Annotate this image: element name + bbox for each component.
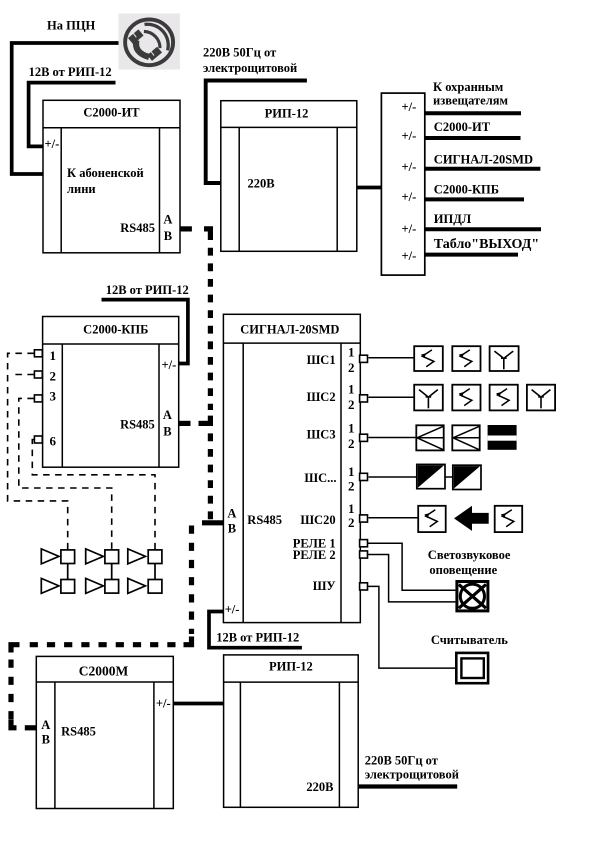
svg-text:+/-: +/- (402, 222, 417, 236)
svg-text:В: В (164, 229, 172, 243)
svg-text:лини: лини (67, 182, 96, 196)
svg-text:В: В (228, 521, 236, 535)
svg-text:ШУ: ШУ (313, 579, 336, 593)
svg-text:Светозвуковое: Светозвуковое (428, 548, 511, 562)
svg-text:2: 2 (50, 369, 57, 384)
svg-text:1: 1 (348, 501, 355, 516)
svg-text:3: 3 (50, 389, 57, 404)
svg-text:ШС...: ШС... (304, 471, 336, 485)
svg-text:А: А (163, 408, 172, 422)
svg-text:+/-: +/- (402, 249, 417, 263)
svg-text:2: 2 (348, 515, 355, 530)
svg-text:RS485: RS485 (247, 513, 282, 527)
svg-text:извещателям: извещателям (433, 94, 508, 108)
svg-text:2: 2 (348, 436, 355, 451)
svg-text:+/-: +/- (162, 358, 177, 372)
svg-text:С2000-ИТ: С2000-ИТ (434, 120, 491, 134)
svg-text:+/-: +/- (402, 129, 417, 143)
svg-text:12В от РИП-12: 12В от РИП-12 (216, 631, 299, 645)
svg-text:+/-: +/- (402, 190, 417, 204)
svg-text:СИГНАЛ-20SMD: СИГНАЛ-20SMD (240, 323, 339, 337)
svg-text:В: В (163, 425, 171, 439)
svg-text:RS485: RS485 (120, 221, 155, 235)
svg-text:С2000-ИТ: С2000-ИТ (83, 106, 140, 120)
svg-text:12В от РИП-12: 12В от РИП-12 (106, 283, 189, 297)
svg-text:+/-: +/- (225, 602, 240, 616)
svg-text:На ПЦН: На ПЦН (47, 19, 96, 33)
svg-text:РИП-12: РИП-12 (265, 106, 309, 120)
svg-text:СИГНАЛ-20SMD: СИГНАЛ-20SMD (434, 152, 533, 166)
svg-text:оповещение: оповещение (429, 563, 497, 577)
svg-text:+/-: +/- (402, 160, 417, 174)
svg-text:А: А (227, 507, 236, 521)
svg-text:Табло"ВЫХОД": Табло"ВЫХОД" (434, 237, 539, 252)
svg-text:1: 1 (50, 348, 57, 363)
svg-text:1: 1 (348, 464, 355, 479)
svg-text:+/-: +/- (156, 697, 171, 711)
svg-text:+/-: +/- (45, 137, 60, 151)
svg-text:1: 1 (348, 382, 355, 397)
svg-text:220В 50Гц от: 220В 50Гц от (365, 754, 438, 768)
svg-text:РИП-12: РИП-12 (269, 660, 313, 674)
svg-text:Считыватель: Считыватель (431, 633, 508, 647)
svg-text:К охранным: К охранным (433, 80, 504, 94)
svg-text:6: 6 (50, 434, 57, 449)
svg-text:2: 2 (348, 397, 355, 412)
svg-text:RS485: RS485 (61, 724, 96, 738)
svg-text:ШС20: ШС20 (300, 513, 335, 527)
svg-text:1: 1 (348, 420, 355, 435)
svg-text:электрощитовой: электрощитовой (365, 767, 459, 781)
svg-text:ШС3: ШС3 (307, 428, 336, 442)
svg-text:12В от РИП-12: 12В от РИП-12 (29, 65, 112, 79)
svg-text:С2000М: С2000М (79, 664, 129, 679)
svg-text:К абоненской: К абоненской (67, 166, 144, 180)
svg-text:220В: 220В (248, 176, 275, 190)
svg-text:А: А (41, 718, 50, 732)
svg-text:А: А (163, 213, 172, 227)
svg-text:С2000-КПБ: С2000-КПБ (83, 322, 148, 336)
svg-text:2: 2 (348, 478, 355, 493)
svg-text:ШС1: ШС1 (307, 353, 336, 367)
svg-text:1: 1 (348, 345, 355, 360)
svg-text:С2000-КПБ: С2000-КПБ (434, 182, 499, 196)
svg-text:RS485: RS485 (120, 418, 155, 432)
svg-text:220В: 220В (306, 780, 333, 794)
svg-text:2: 2 (348, 360, 355, 375)
svg-text:220В 50Гц от: 220В 50Гц от (203, 46, 276, 60)
svg-text:РЕЛЕ 2: РЕЛЕ 2 (293, 548, 336, 562)
svg-text:ШС2: ШС2 (307, 390, 336, 404)
svg-text:ИПДЛ: ИПДЛ (434, 212, 472, 226)
svg-text:В: В (42, 733, 50, 747)
svg-text:+/-: +/- (402, 100, 417, 114)
svg-text:электрощитовой: электрощитовой (203, 61, 297, 75)
